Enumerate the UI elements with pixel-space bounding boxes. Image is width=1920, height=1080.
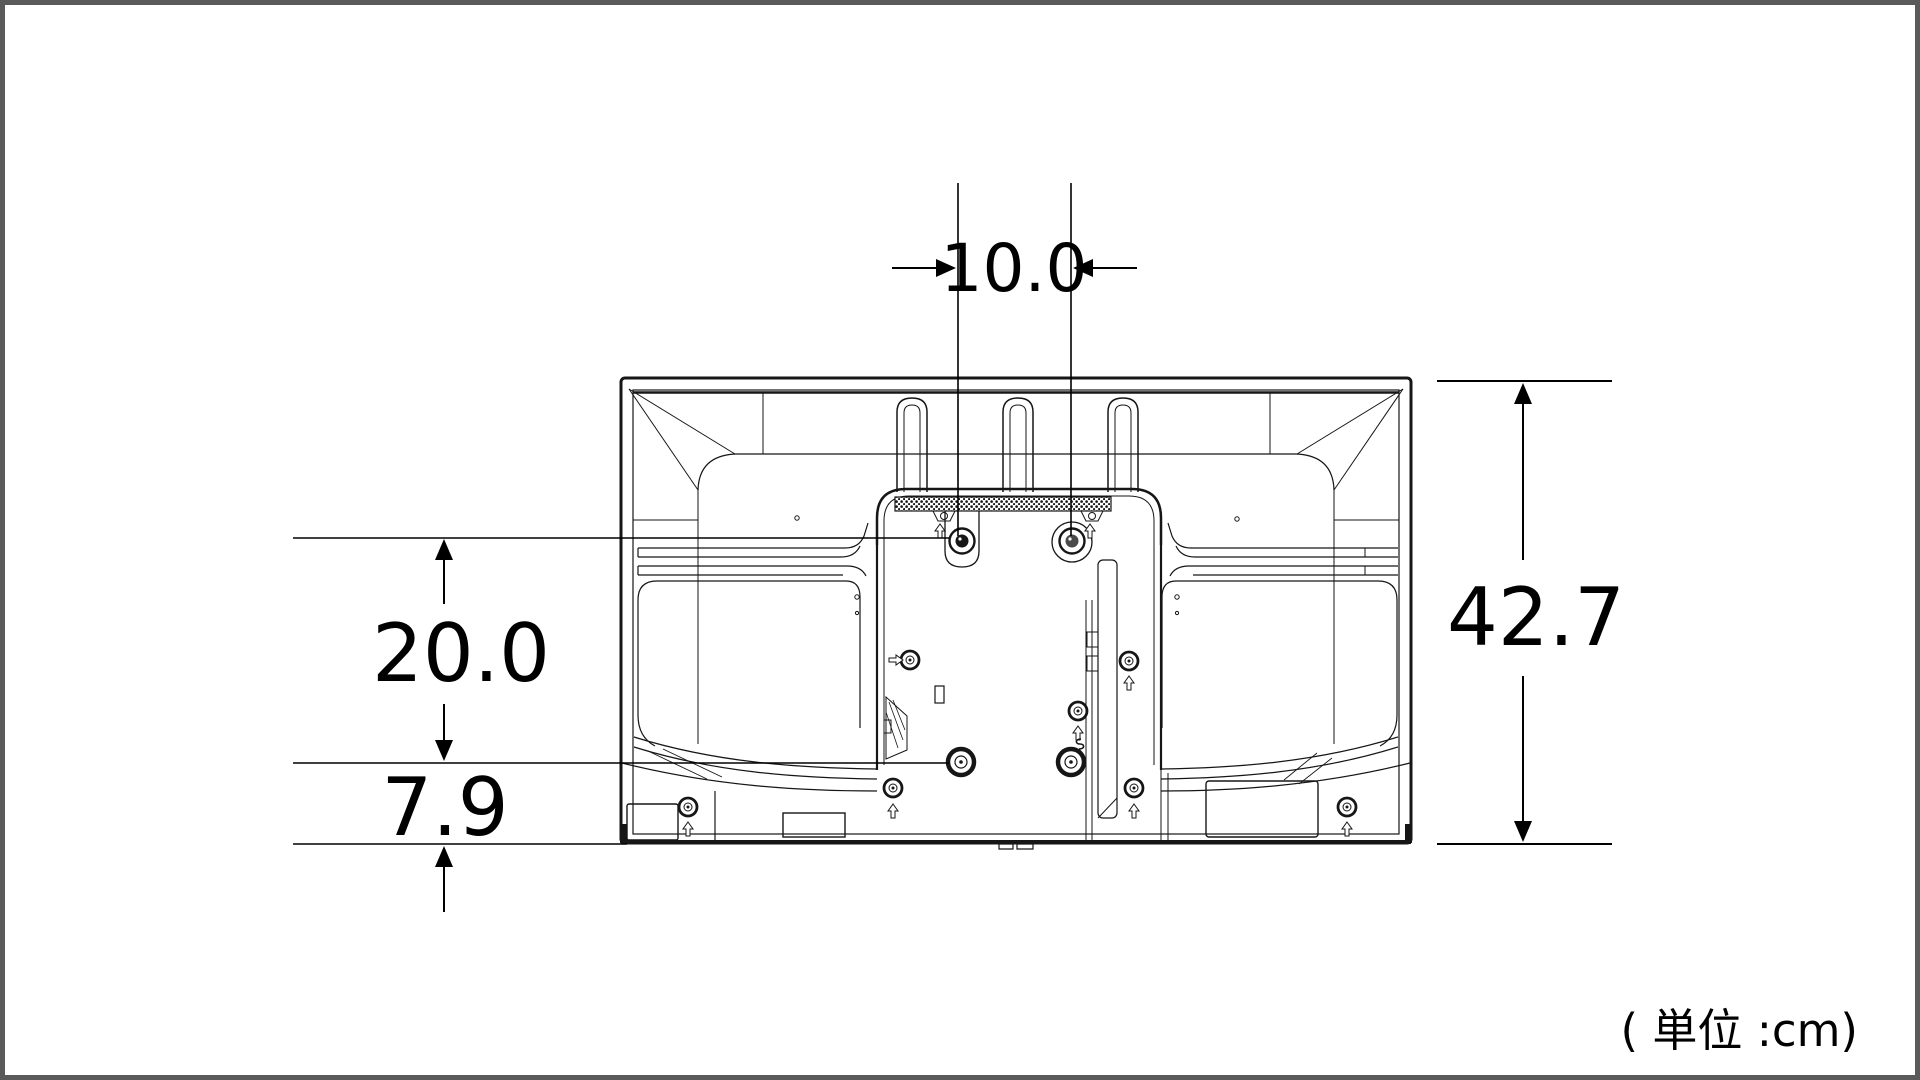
vesa-hole-bottom-right [1058, 749, 1084, 775]
arrowhead-down-icon [1514, 821, 1532, 842]
arrowhead-up-icon [1514, 383, 1532, 404]
dimension-label-hole-spacing-horizontal: 10.0 [941, 230, 1088, 307]
unit-note: ( 単位 :cm) [1621, 1004, 1858, 1057]
vent-grille-strip [895, 497, 1111, 511]
stand-cover-strip [1098, 560, 1117, 818]
arrowhead-up-icon [435, 539, 453, 560]
tv-rear-outline [620, 378, 1412, 849]
arrowhead-down-icon [435, 740, 453, 761]
screw-direction-arrows [683, 524, 1352, 836]
stand-feet-tabs [999, 844, 1033, 849]
vesa-mount-recess [877, 489, 1161, 840]
side-panels [638, 581, 1397, 746]
pilot-dots [795, 516, 1239, 615]
bottom-bar [620, 737, 1412, 849]
dimension-label-bottom-offset: 7.9 [381, 761, 508, 854]
dimension-label-total-height: 42.7 [1447, 571, 1625, 664]
center-slot [935, 686, 944, 703]
case-screws [679, 651, 1356, 816]
diagram-page: 10.0 20.0 7.9 42.7 ( 単位 :cm) [0, 0, 1920, 1080]
back-rails [638, 523, 1398, 576]
cable-hook-prongs [897, 398, 1138, 492]
vesa-hole-top-left [945, 511, 979, 567]
tv-rear-dimension-diagram: 10.0 20.0 7.9 42.7 ( 単位 :cm) [0, 0, 1920, 1080]
vesa-hole-top-right [1052, 522, 1092, 562]
vesa-hole-bottom-left [948, 749, 974, 775]
dimension-label-hole-spacing-vertical: 20.0 [372, 607, 550, 700]
